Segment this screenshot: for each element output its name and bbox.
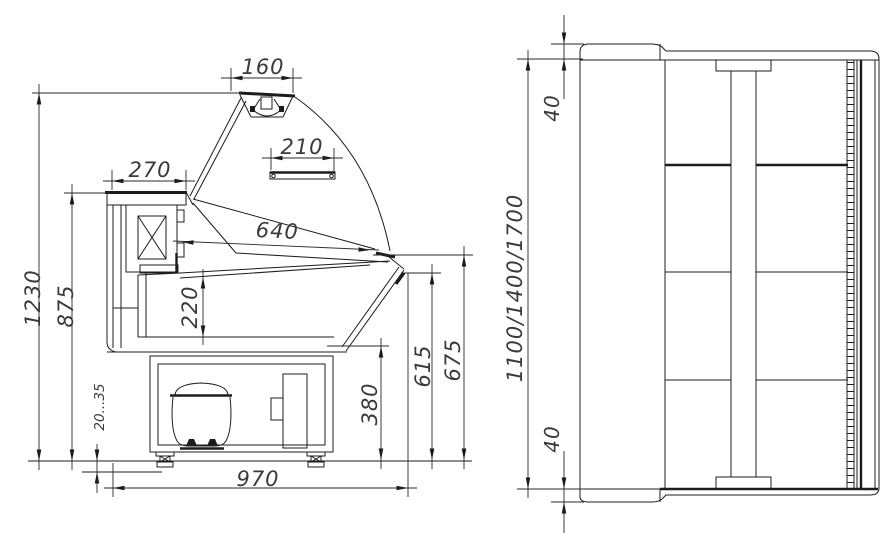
dim-machine-compartment-height-label: 380	[358, 382, 382, 425]
dim-display-opening-depth: 640	[173, 218, 379, 252]
dim-worktop-depth: 270	[103, 158, 195, 190]
dim-top-trim: 40	[540, 15, 584, 122]
top-trim	[580, 44, 879, 60]
dim-front-lower-height: 615	[401, 264, 441, 469]
dim-foot-adjustment-label: 20...35	[92, 383, 108, 430]
bottom-trim	[580, 488, 879, 502]
evaporator-box	[126, 205, 184, 273]
dim-display-opening-depth-label: 640	[255, 218, 299, 244]
adjustable-foot-left	[156, 452, 174, 467]
dim-top-shelf-width: 210	[262, 135, 343, 172]
dim-well-depth: 220	[178, 269, 205, 345]
dim-foot-adjustment: 20...35	[92, 383, 108, 493]
dim-machine-compartment-height: 380	[327, 338, 389, 469]
dim-top-trim-label: 40	[540, 94, 564, 121]
lamp-icon	[250, 97, 284, 116]
dim-worktop-depth-label: 270	[128, 158, 171, 182]
side-view-dimensions: 160 210 270 640	[21, 55, 473, 497]
dim-front-lower-height-label: 615	[411, 344, 435, 387]
cabinet-body	[580, 60, 879, 489]
dim-top-shelf-width-label: 210	[280, 135, 323, 159]
dim-overall-height: 1230	[21, 84, 243, 470]
dim-overall-height-label: 1230	[21, 269, 45, 326]
back-panel	[107, 205, 138, 352]
dim-canopy-width: 160	[221, 55, 302, 93]
front-glass	[295, 97, 404, 269]
drawing-sheet: 160 210 270 640	[0, 0, 895, 546]
night-curtain-strip	[847, 60, 854, 489]
compressor-icon	[170, 383, 232, 449]
dim-worktop-height-label: 875	[54, 284, 78, 327]
dim-overall-length-label: 1100/1400/1700	[503, 194, 527, 382]
dim-overall-depth-label: 970	[236, 467, 279, 491]
top-shelf	[270, 172, 335, 179]
center-column	[716, 60, 771, 489]
front-view-dimensions: 40 1100/1400/1700 40	[503, 15, 584, 533]
canopy	[239, 93, 295, 117]
dim-front-upper-height-label: 675	[441, 338, 465, 381]
front-view	[580, 44, 879, 502]
technical-drawing: 160 210 270 640	[0, 0, 895, 546]
electrical-panel	[271, 374, 307, 448]
dim-canopy-width-label: 160	[241, 55, 284, 79]
back-glass	[190, 98, 246, 199]
worktop-board	[105, 192, 193, 205]
dim-bottom-trim: 40	[540, 425, 584, 533]
adjustable-foot-right	[307, 452, 325, 467]
dim-well-depth-label: 220	[178, 285, 202, 328]
machine-compartment	[150, 356, 333, 452]
dim-bottom-trim-label: 40	[540, 425, 564, 452]
